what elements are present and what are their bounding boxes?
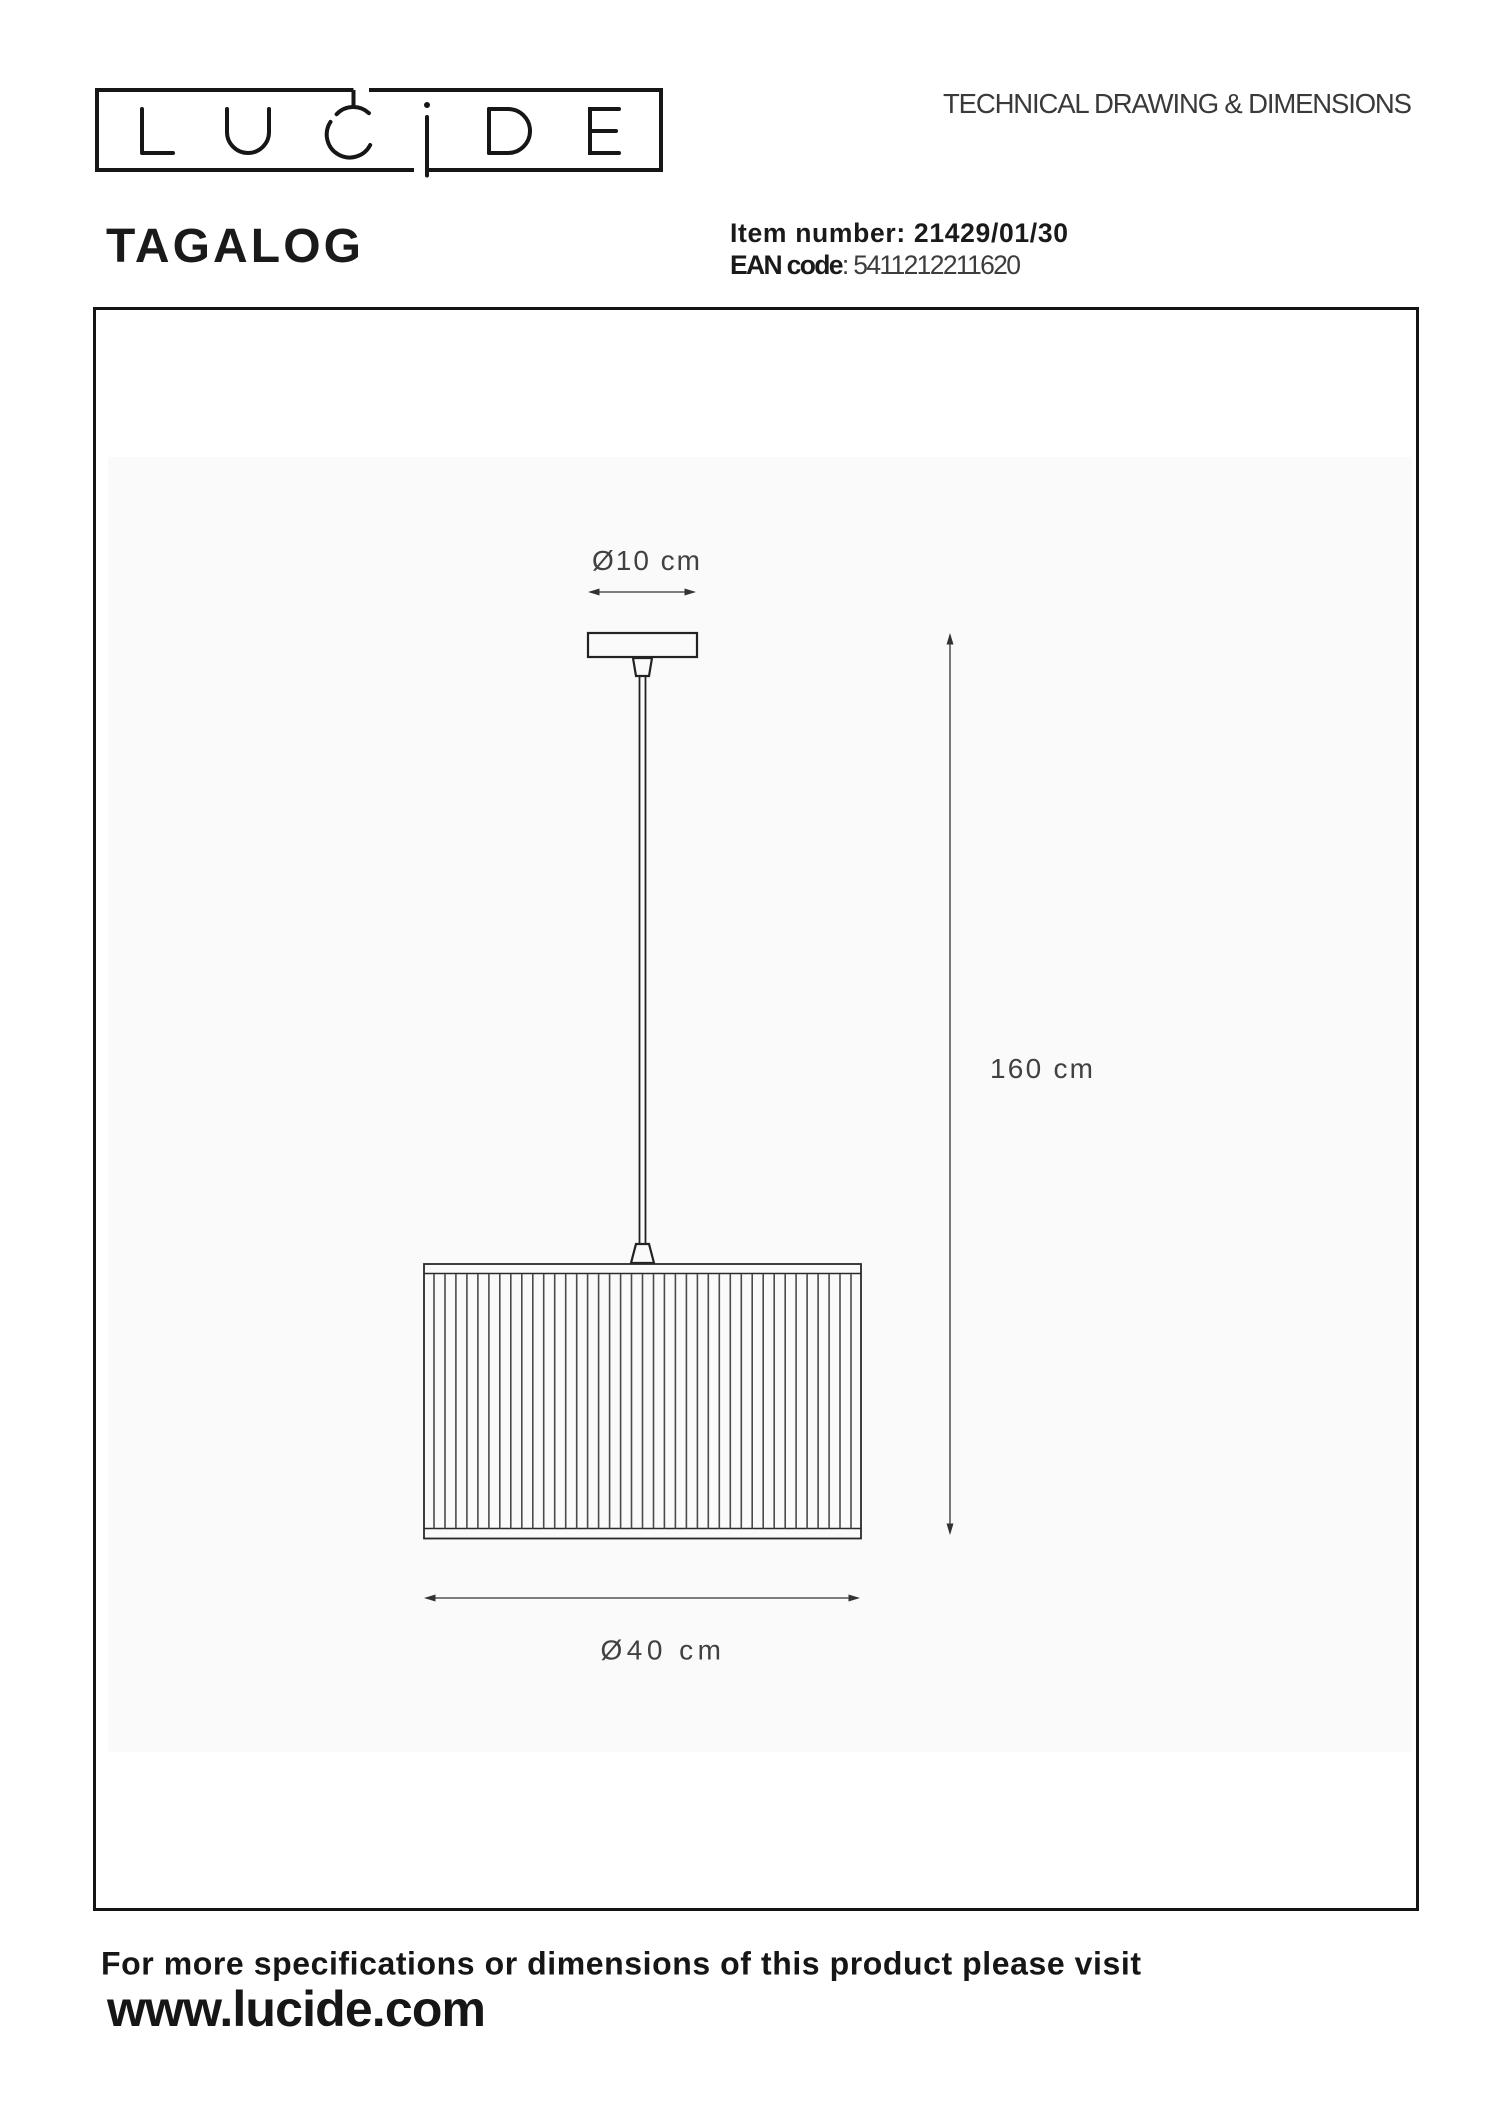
svg-text:For more specifications or dim: For more specifications or dimensions of…: [101, 1946, 1141, 1982]
svg-text:Item number: 21429/01/30: Item number: 21429/01/30: [730, 218, 1068, 248]
svg-text:Ø10 cm: Ø10 cm: [592, 545, 700, 576]
svg-text:Ø40 cm: Ø40 cm: [601, 1635, 722, 1666]
svg-text:EAN code: 5411212211620: EAN code: 5411212211620: [730, 250, 1021, 280]
svg-text:TAGALOG: TAGALOG: [106, 220, 361, 273]
svg-text:www.lucide.com: www.lucide.com: [106, 1981, 486, 2037]
svg-text:TECHNICAL DRAWING & DIMENSIONS: TECHNICAL DRAWING & DIMENSIONS: [943, 88, 1412, 119]
